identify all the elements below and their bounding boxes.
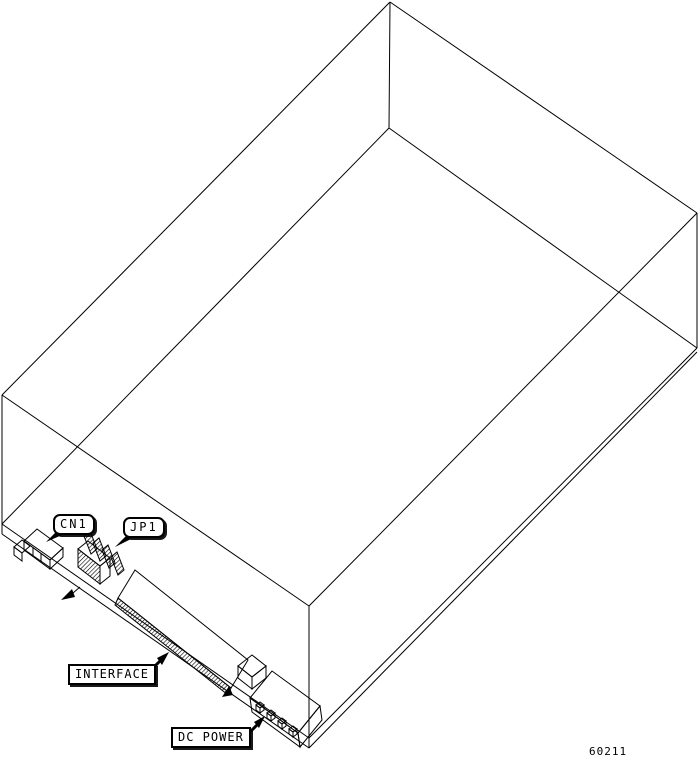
pin1-arrow-icon — [61, 587, 80, 600]
enclosure-wireframe — [2, 2, 697, 748]
callout-interface: INTERFACE — [68, 664, 156, 685]
wireframe-drawing — [0, 0, 699, 768]
dc-power-pointer-arrow-icon — [250, 716, 265, 732]
callout-jp1: JP1 — [123, 517, 165, 538]
part-number: 60211 — [589, 745, 627, 758]
callout-dc-power: DC POWER — [171, 727, 251, 748]
jp1-jumpers — [78, 531, 124, 584]
callout-cn1: CN1 — [53, 514, 95, 535]
figure-canvas: CN1 JP1 INTERFACE DC POWER 60211 — [0, 0, 699, 768]
